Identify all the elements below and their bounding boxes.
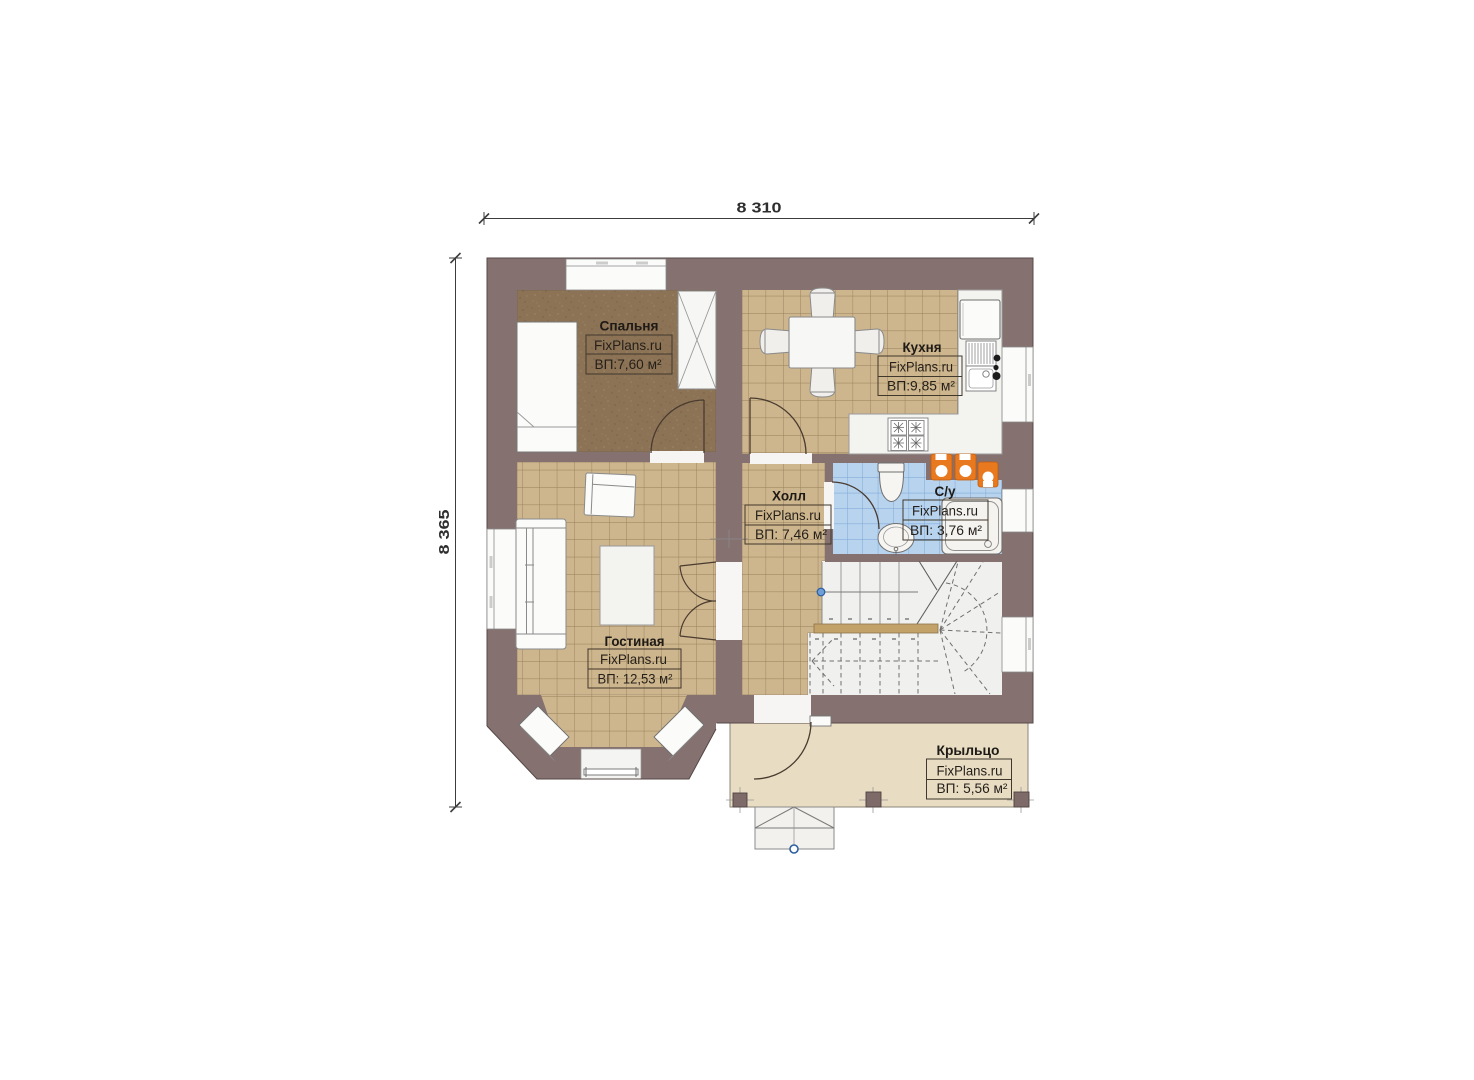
svg-text:ВП: 3,76 м²: ВП: 3,76 м² — [910, 522, 982, 538]
svg-text:FixPlans.ru: FixPlans.ru — [755, 507, 821, 523]
svg-text:8 310: 8 310 — [737, 201, 782, 217]
svg-text:FixPlans.ru: FixPlans.ru — [889, 359, 953, 375]
svg-text:ВП: 12,53 м²: ВП: 12,53 м² — [598, 671, 673, 687]
svg-text:FixPlans.ru: FixPlans.ru — [600, 651, 667, 667]
svg-text:ВП: 5,56 м²: ВП: 5,56 м² — [937, 780, 1008, 796]
svg-text:Гостиная: Гостиная — [605, 633, 665, 649]
svg-text:Спальня: Спальня — [600, 318, 659, 334]
svg-text:ВП: 7,46 м²: ВП: 7,46 м² — [755, 526, 827, 542]
svg-text:Крыльцо: Крыльцо — [937, 742, 1000, 758]
svg-text:ВП:9,85 м²: ВП:9,85 м² — [887, 378, 955, 394]
svg-text:Холл: Холл — [772, 488, 806, 504]
svg-text:Кухня: Кухня — [903, 339, 942, 355]
svg-text:С/у: С/у — [935, 483, 956, 499]
svg-text:ВП:7,60 м²: ВП:7,60 м² — [595, 356, 662, 372]
svg-text:FixPlans.ru: FixPlans.ru — [912, 503, 978, 519]
svg-text:FixPlans.ru: FixPlans.ru — [937, 763, 1003, 779]
svg-text:8 365: 8 365 — [437, 510, 453, 555]
svg-text:FixPlans.ru: FixPlans.ru — [594, 337, 662, 353]
